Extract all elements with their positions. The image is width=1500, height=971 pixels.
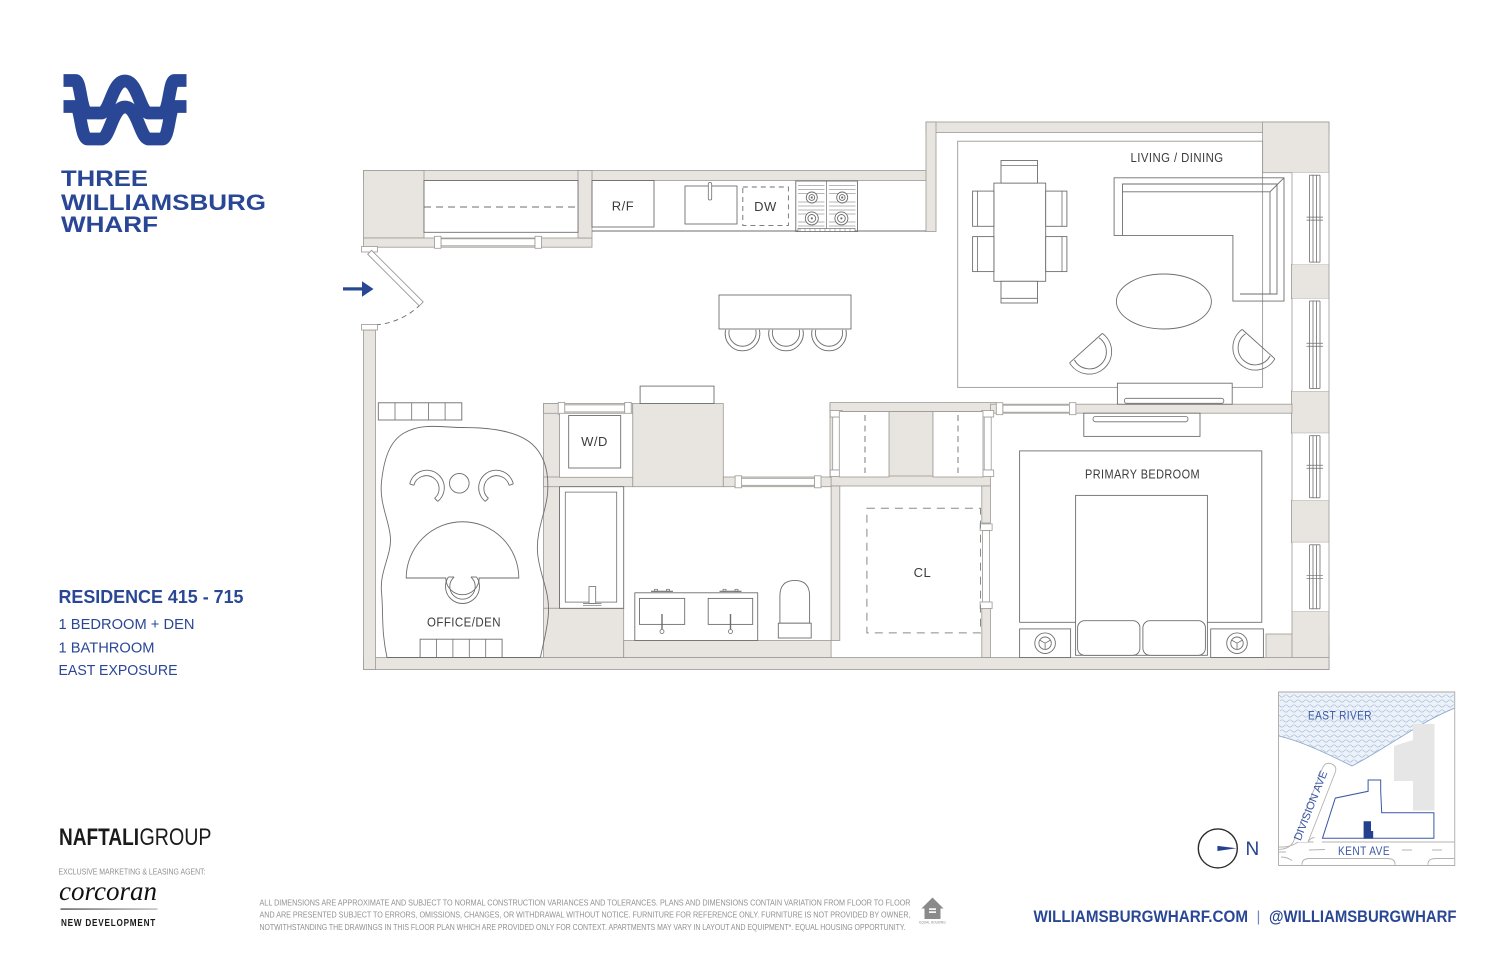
svg-text:AND ARE PRESENTED SUBJECT TO E: AND ARE PRESENTED SUBJECT TO ERRORS, OMI… xyxy=(260,911,911,920)
svg-text:NEW DEVELOPMENT: NEW DEVELOPMENT xyxy=(61,917,156,929)
svg-text:LIVING / DINING: LIVING / DINING xyxy=(1131,150,1224,165)
svg-text:PRIMARY BEDROOM: PRIMARY BEDROOM xyxy=(1085,467,1200,482)
svg-text:WILLIAMSBURGWHARF.COM: WILLIAMSBURGWHARF.COM xyxy=(1034,907,1249,926)
svg-text:|: | xyxy=(1257,909,1261,926)
svg-text:N: N xyxy=(1246,839,1260,860)
svg-text:NAFTALI: NAFTALI xyxy=(59,824,139,851)
svg-text:GROUP: GROUP xyxy=(140,824,212,851)
svg-text:THREE: THREE xyxy=(61,166,148,191)
svg-text:OFFICE/DEN: OFFICE/DEN xyxy=(427,615,501,630)
svg-text:R/F: R/F xyxy=(612,199,634,214)
svg-text:ALL DIMENSIONS ARE APPROXIMATE: ALL DIMENSIONS ARE APPROXIMATE AND SUBJE… xyxy=(260,899,911,908)
svg-text:CL: CL xyxy=(914,565,932,580)
svg-text:EQUAL HOUSING: EQUAL HOUSING xyxy=(919,921,946,925)
svg-text:WHARF: WHARF xyxy=(61,212,158,237)
svg-text:EAST EXPOSURE: EAST EXPOSURE xyxy=(59,662,178,679)
svg-text:DW: DW xyxy=(754,199,777,214)
svg-text:NOTWITHSTANDING THE DRAWINGS I: NOTWITHSTANDING THE DRAWINGS IN THIS FLO… xyxy=(260,923,906,932)
svg-text:1 BEDROOM + DEN: 1 BEDROOM + DEN xyxy=(59,616,195,633)
svg-text:1 BATHROOM: 1 BATHROOM xyxy=(59,640,155,657)
svg-text:EAST RIVER: EAST RIVER xyxy=(1308,711,1372,723)
svg-text:W/D: W/D xyxy=(581,434,608,449)
svg-text:@WILLIAMSBURGWHARF: @WILLIAMSBURGWHARF xyxy=(1269,907,1457,926)
svg-text:KENT AVE: KENT AVE xyxy=(1338,846,1390,858)
svg-text:corcoran: corcoran xyxy=(59,876,157,906)
svg-text:RESIDENCE 415 - 715: RESIDENCE 415 - 715 xyxy=(59,586,244,607)
